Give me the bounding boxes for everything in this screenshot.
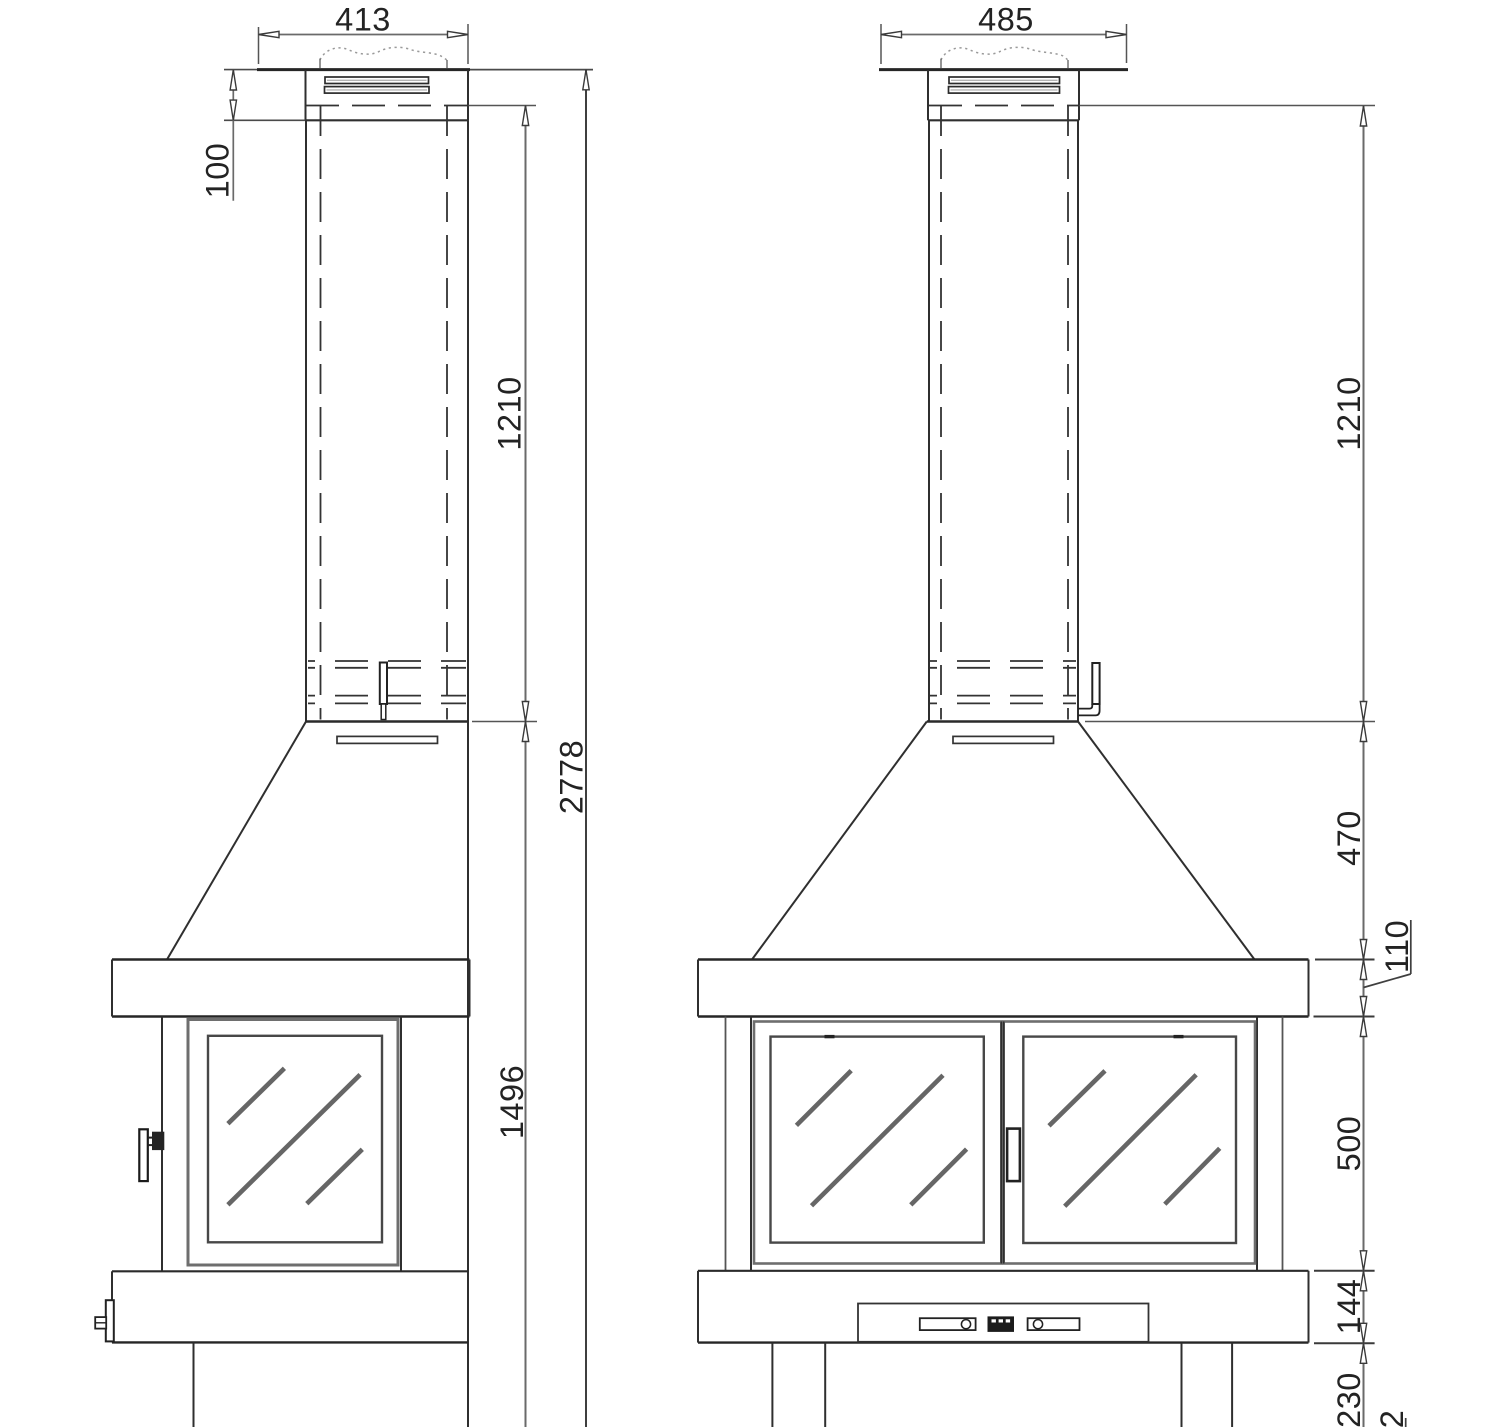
svg-text:1210: 1210 [1331,376,1367,450]
svg-text:2: 2 [1374,1410,1410,1427]
svg-text:485: 485 [978,2,1034,38]
svg-text:1496: 1496 [494,1065,530,1139]
svg-text:500: 500 [1331,1116,1367,1172]
svg-text:100: 100 [200,143,236,199]
svg-text:110: 110 [1379,920,1415,973]
svg-text:230: 230 [1331,1372,1367,1427]
svg-text:2778: 2778 [554,740,590,814]
svg-text:1210: 1210 [492,376,528,450]
svg-text:470: 470 [1331,810,1367,866]
svg-text:413: 413 [335,2,391,38]
svg-text:144: 144 [1331,1279,1367,1335]
